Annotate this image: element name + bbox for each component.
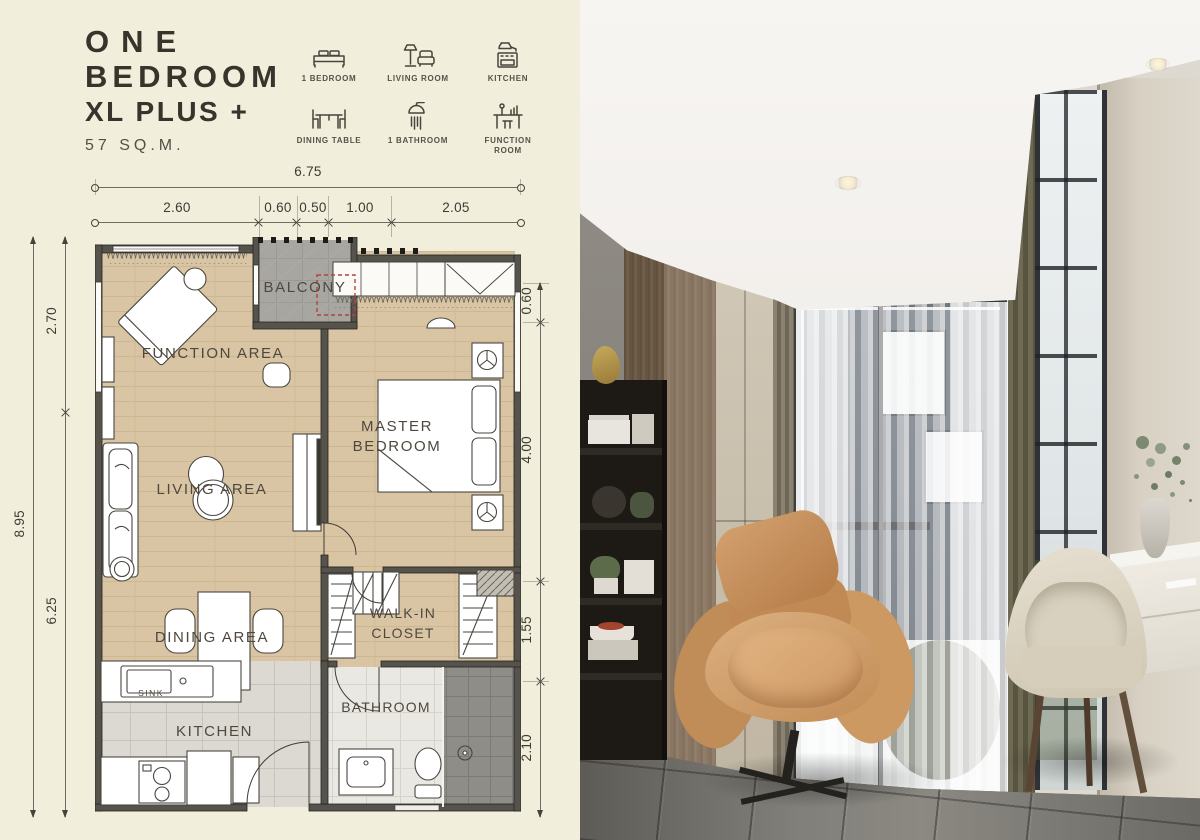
books (624, 560, 654, 594)
label-living-area: LIVING AREA (107, 481, 317, 498)
brochure-page: ONE BEDROOM XL PLUS + 57 SQ.M. 1 BEDROOM… (0, 0, 1200, 840)
shelf (580, 598, 662, 605)
label-dining-area: DINING AREA (107, 629, 317, 646)
dim-line (540, 283, 541, 817)
side-table (110, 557, 134, 581)
feature-label: DINING TABLE (283, 136, 375, 146)
dim-right-seg: 4.00 (519, 436, 534, 463)
books (632, 414, 654, 444)
dim-seg: 1.00 (332, 200, 388, 215)
floor-plan: BALCONY FUNCTION AREA MASTER BEDROOM LIV… (95, 237, 521, 817)
round-table (184, 268, 206, 290)
title-line-2: BEDROOM (85, 59, 282, 94)
label-walk-in-closet: WALK-IN CLOSET (347, 603, 459, 643)
wood-panel-wall (664, 242, 718, 840)
accent-chair-seat (1020, 646, 1142, 688)
dim-line (95, 187, 521, 188)
shelf (580, 448, 662, 455)
toilet (415, 748, 441, 780)
feature-label: LIVING ROOM (372, 74, 464, 84)
unit-title-block: ONE BEDROOM XL PLUS + 57 SQ.M. (85, 24, 282, 155)
planter (594, 578, 618, 594)
chair-shadow (700, 752, 940, 808)
recessed-light (835, 176, 861, 190)
dim-seg: 2.60 (149, 200, 205, 215)
title-line-1: ONE (85, 24, 282, 59)
label-bathroom: BATHROOM (331, 699, 441, 715)
dim-right-seg: 1.55 (519, 616, 534, 643)
dim-line (95, 222, 521, 223)
bathroom-icon (372, 100, 464, 132)
floorplan-panel: ONE BEDROOM XL PLUS + 57 SQ.M. 1 BEDROOM… (0, 0, 580, 840)
dim-line (33, 237, 34, 817)
unit-area: 57 SQ.M. (85, 137, 282, 155)
interior-photo (580, 0, 1200, 840)
decor-sphere (592, 486, 626, 518)
books (588, 420, 630, 444)
label-balcony: BALCONY (255, 279, 355, 296)
bed-icon (283, 38, 375, 70)
books (588, 640, 638, 660)
feature-label: FUNCTION ROOM (479, 136, 537, 156)
feature-function-room: FUNCTION ROOM (462, 100, 554, 156)
bowl-fruit (598, 622, 624, 630)
stool (263, 363, 290, 387)
label-sink: SINK (121, 688, 181, 698)
dim-top-total: 6.75 (95, 164, 521, 179)
feature-label: KITCHEN (462, 74, 554, 84)
sheer-curtain (950, 302, 1008, 795)
shelf (580, 673, 662, 680)
feature-kitchen: KITCHEN (462, 38, 554, 94)
dim-left-total: 8.95 (12, 510, 27, 537)
shelf-plant (630, 492, 654, 518)
kitchen-icon (462, 38, 554, 70)
feature-bathroom: 1 BATHROOM (372, 100, 464, 156)
feature-bedroom: 1 BEDROOM (283, 38, 375, 94)
dim-line (65, 237, 66, 817)
eucalyptus-plant (1136, 436, 1149, 449)
living-room-icon (372, 38, 464, 70)
right-wall (1097, 78, 1200, 840)
feature-living-room: LIVING ROOM (372, 38, 464, 94)
kitchen-island (187, 751, 231, 805)
shaft (477, 570, 514, 596)
label-kitchen: KITCHEN (107, 723, 322, 740)
dim-right-seg: 2.10 (519, 734, 534, 761)
label-function-area: FUNCTION AREA (107, 345, 319, 362)
recessed-light (1146, 58, 1170, 71)
lounge-chair-cushion (728, 628, 863, 708)
feature-dining-table: DINING TABLE (283, 100, 375, 156)
shelf (580, 523, 662, 530)
label-master-bedroom: MASTER BEDROOM (333, 417, 461, 457)
dim-seg: 2.05 (428, 200, 484, 215)
dim-right-seg: 0.60 (519, 287, 534, 314)
feature-label: 1 BEDROOM (283, 74, 375, 84)
feature-label: 1 BATHROOM (372, 136, 464, 146)
tv (317, 439, 321, 525)
cabinet (233, 757, 259, 803)
title-line-3: XL PLUS + (85, 94, 282, 130)
function-room-icon (462, 100, 554, 132)
dining-table-icon (283, 100, 375, 132)
dim-left-upper: 2.70 (44, 307, 59, 334)
dim-left-lower: 6.25 (44, 597, 59, 624)
